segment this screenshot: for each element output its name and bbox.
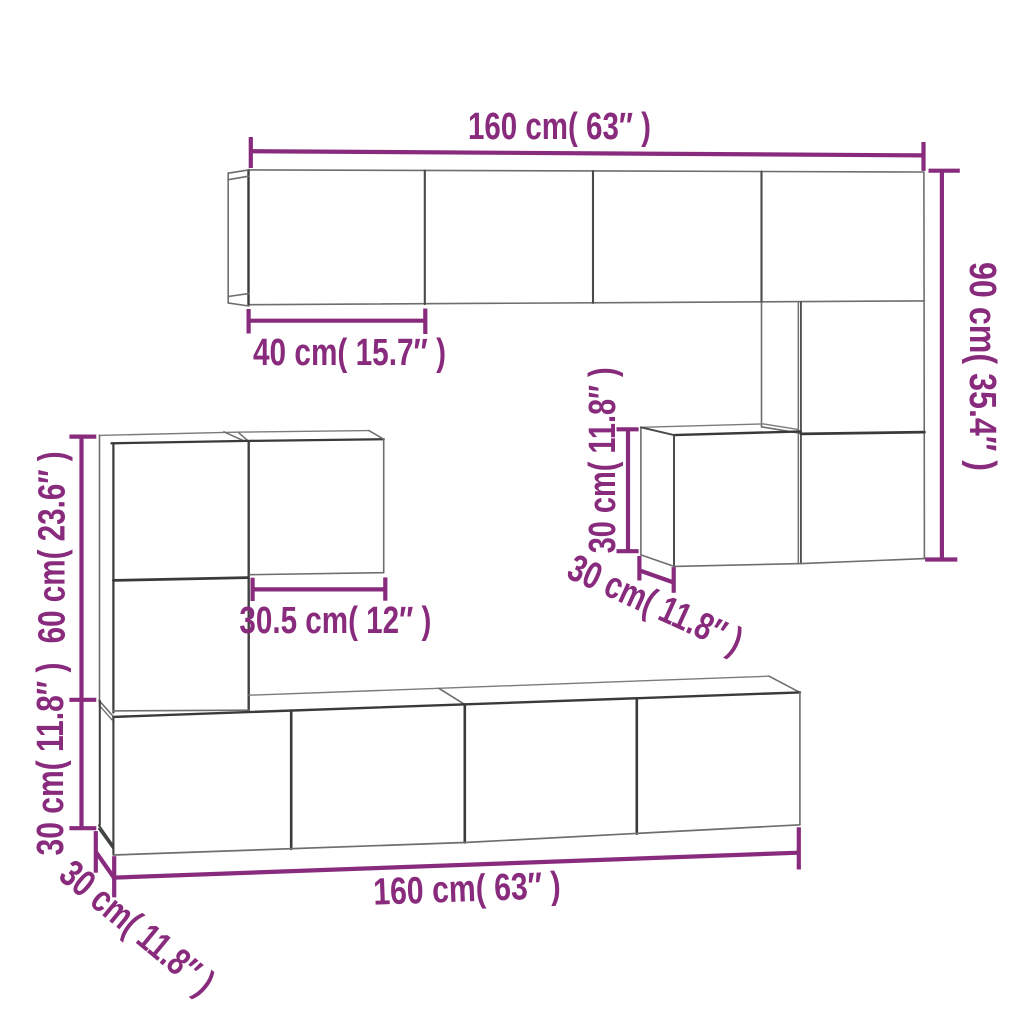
svg-text:60 cm( 23.6″ ): 60 cm( 23.6″ ) (32, 451, 74, 643)
svg-text:160 cm( 63″ ): 160 cm( 63″ ) (372, 865, 561, 914)
svg-text:160 cm( 63″ ): 160 cm( 63″ ) (468, 106, 651, 148)
svg-text:40 cm( 15.7″ ): 40 cm( 15.7″ ) (253, 332, 446, 374)
svg-text:30 cm( 11.8″ ): 30 cm( 11.8″ ) (582, 367, 624, 553)
svg-text:90 cm( 35.4″ ): 90 cm( 35.4″ ) (961, 262, 1003, 471)
svg-text:30 cm( 11.8″ ): 30 cm( 11.8″ ) (30, 663, 72, 856)
svg-text:30.5 cm( 12″ ): 30.5 cm( 12″ ) (239, 600, 431, 642)
